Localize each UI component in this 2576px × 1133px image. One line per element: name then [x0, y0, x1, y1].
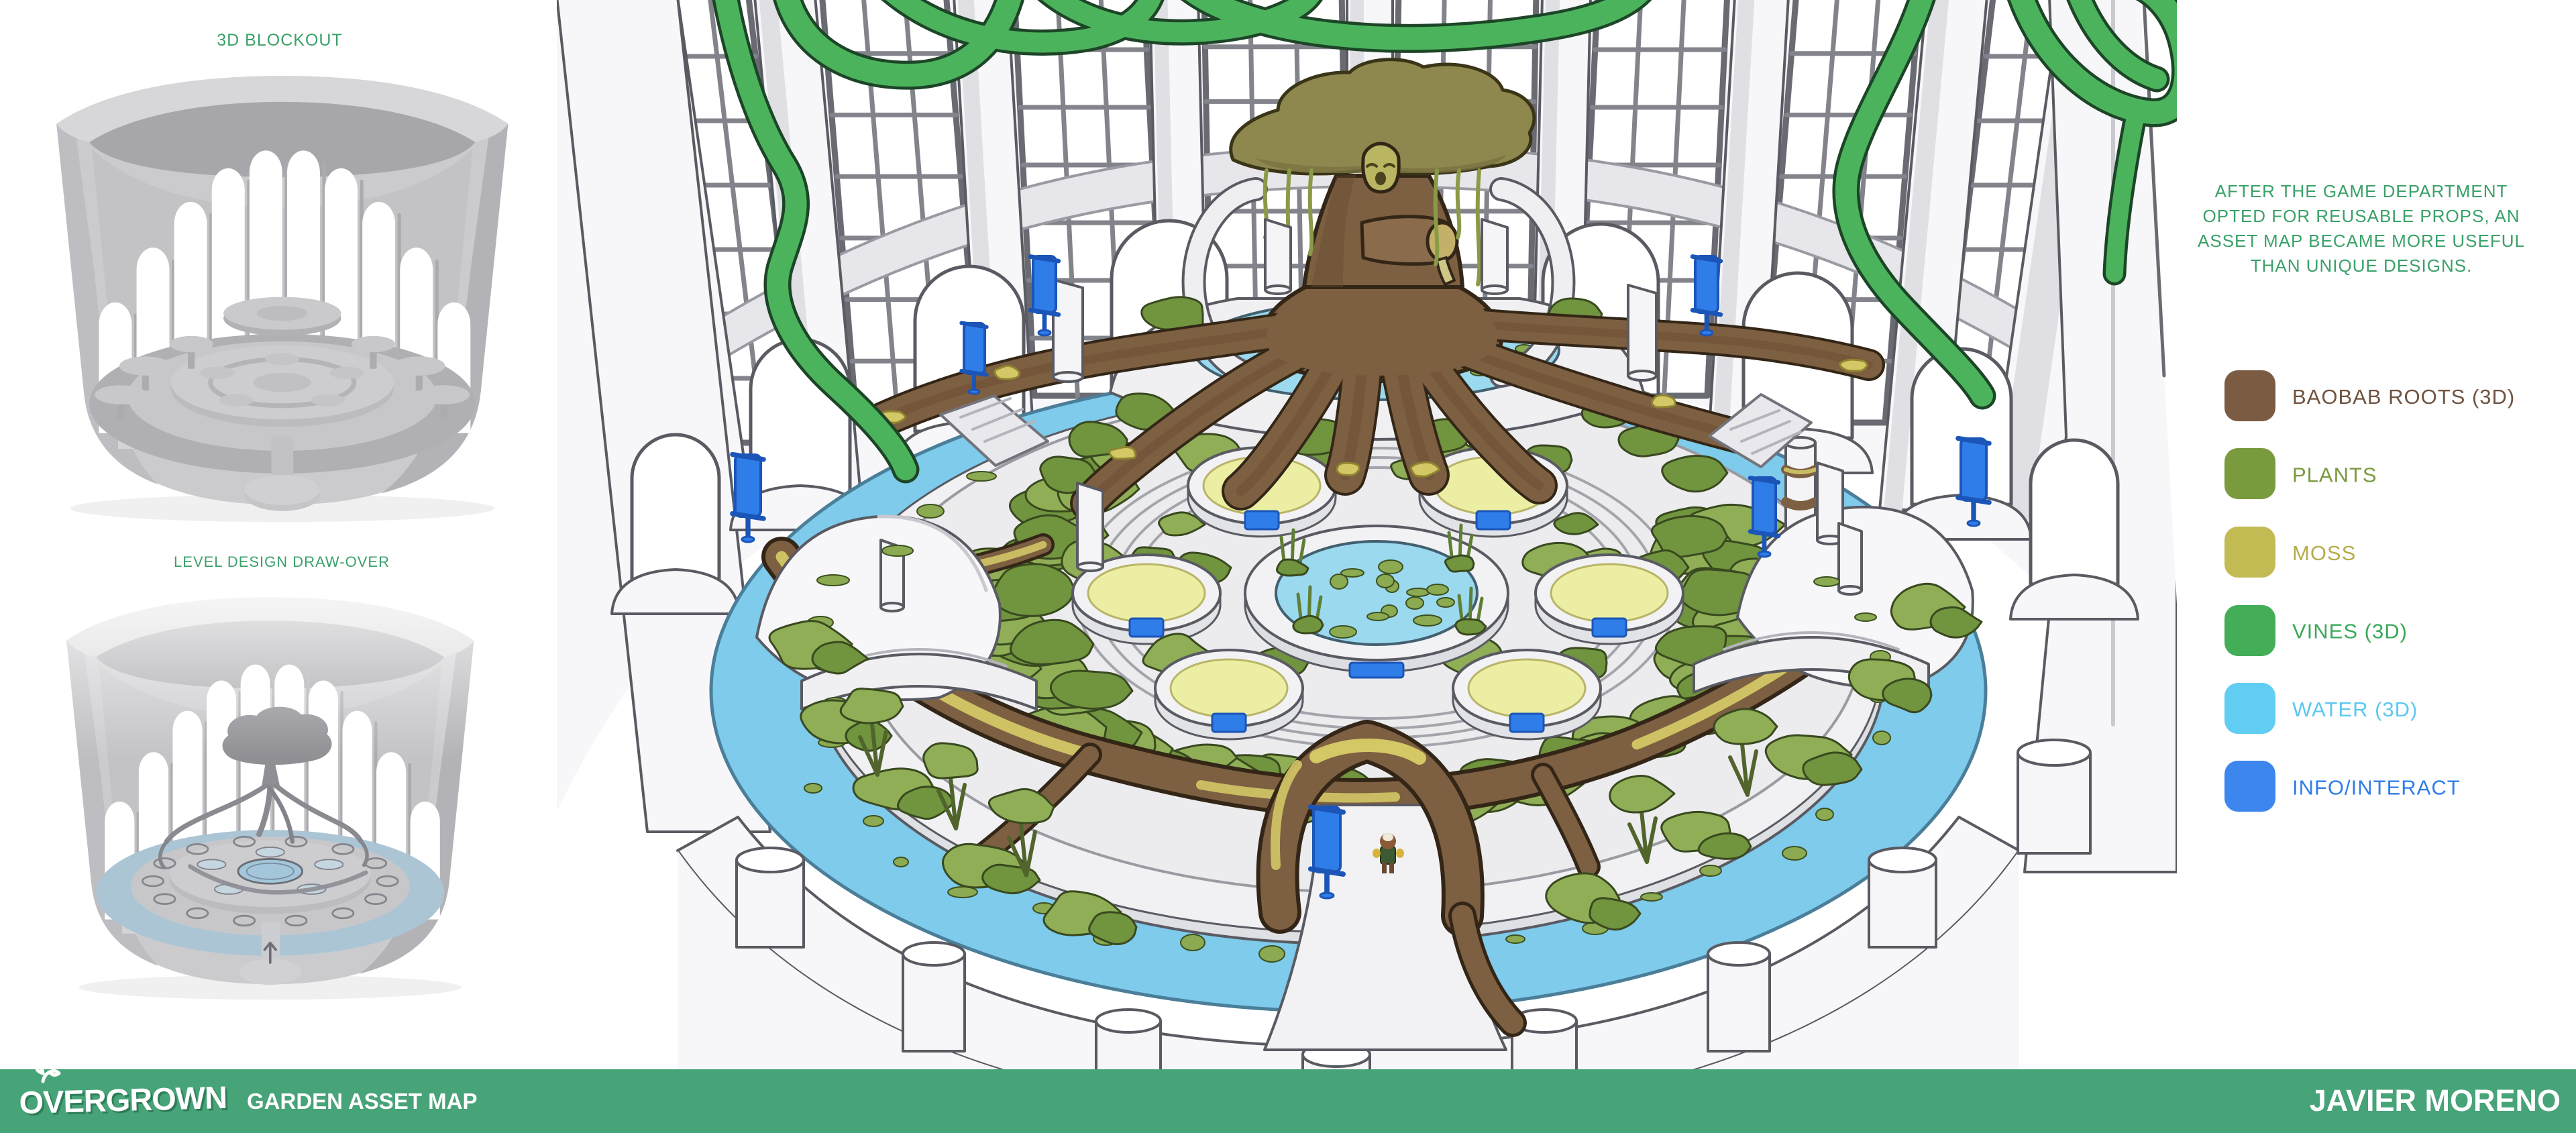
svg-text:WATER (3D): WATER (3D): [2292, 698, 2418, 721]
svg-text:LEVEL DESIGN DRAW-OVER: LEVEL DESIGN DRAW-OVER: [174, 553, 390, 570]
svg-text:OVERGROWN: OVERGROWN: [19, 1079, 227, 1120]
svg-text:3D BLOCKOUT: 3D BLOCKOUT: [217, 31, 342, 50]
svg-text:ASSET MAP BECAME MORE USEFUL: ASSET MAP BECAME MORE USEFUL: [2198, 231, 2525, 251]
svg-text:PLANTS: PLANTS: [2292, 464, 2377, 487]
svg-text:MOSS: MOSS: [2292, 541, 2356, 565]
svg-text:THAN UNIQUE DESIGNS.: THAN UNIQUE DESIGNS.: [2251, 256, 2473, 276]
svg-text:BAOBAB ROOTS (3D): BAOBAB ROOTS (3D): [2292, 385, 2515, 409]
svg-text:GARDEN ASSET MAP: GARDEN ASSET MAP: [247, 1089, 477, 1114]
svg-text:VINES (3D): VINES (3D): [2292, 620, 2408, 643]
svg-text:AFTER THE GAME DEPARTMENT: AFTER THE GAME DEPARTMENT: [2215, 181, 2508, 201]
svg-text:OPTED FOR REUSABLE PROPS, AN: OPTED FOR REUSABLE PROPS, AN: [2203, 206, 2520, 226]
svg-text:INFO/INTERACT: INFO/INTERACT: [2292, 776, 2461, 800]
svg-text:JAVIER MORENO: JAVIER MORENO: [2310, 1083, 2561, 1118]
